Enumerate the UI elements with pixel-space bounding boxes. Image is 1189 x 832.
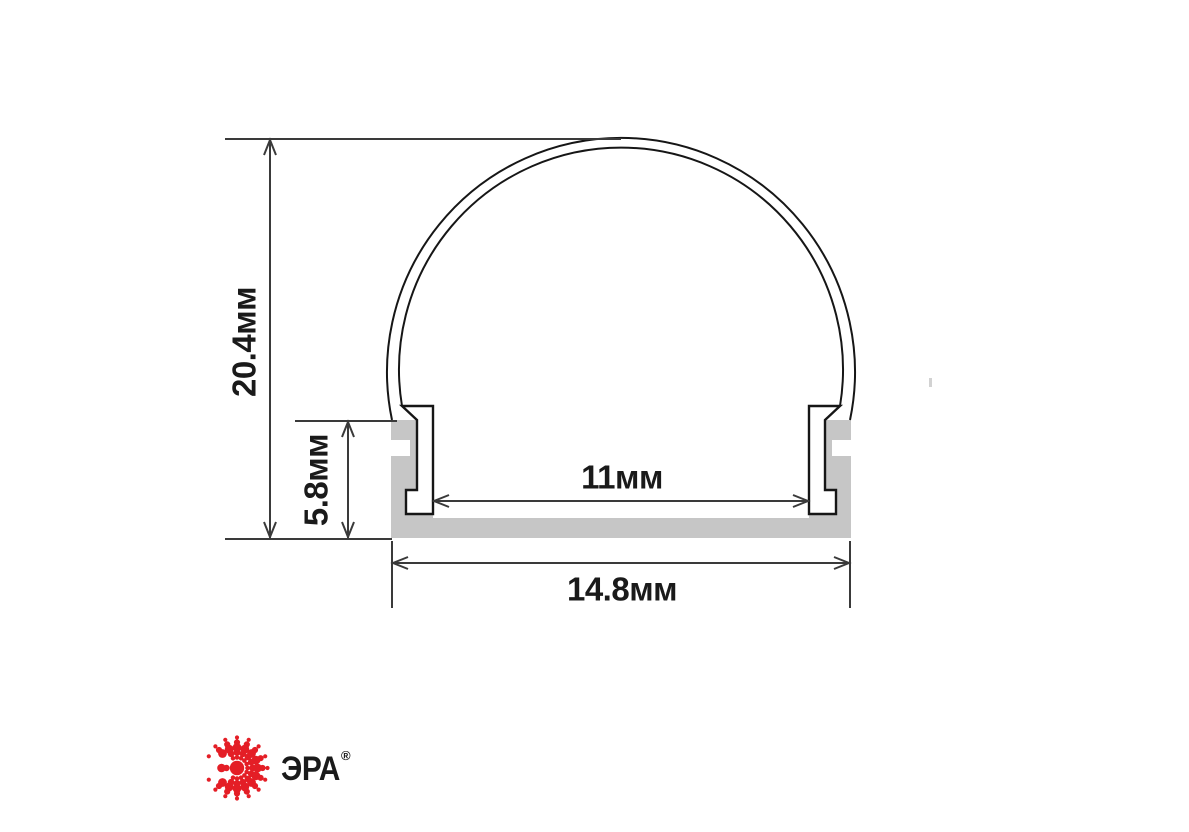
diffuser-dome [387,138,855,420]
dimension-label-overall-height: 20.4мм [228,287,261,397]
era-logo-icon [203,730,271,806]
technical-drawing-canvas: 20.4мм 5.8мм 11мм 14.8мм ЭРА ® [0,0,1189,832]
dimension-label-inner-width: 11мм [581,461,663,494]
registered-trademark: ® [341,749,351,762]
diffuser-outer-arc [387,138,855,420]
dimension-label-base-width: 14.8мм [567,573,677,606]
mounting-notch-right [832,440,851,456]
dimension-label-base-height: 5.8мм [300,434,333,526]
mounting-notch-left [391,440,410,456]
era-logo-text: ЭРА [281,752,340,786]
artifact-mark [929,378,932,387]
profile-drawing-svg [0,0,1189,832]
base-bottom-plate [391,518,851,538]
diffuser-inner-arc [399,148,843,406]
